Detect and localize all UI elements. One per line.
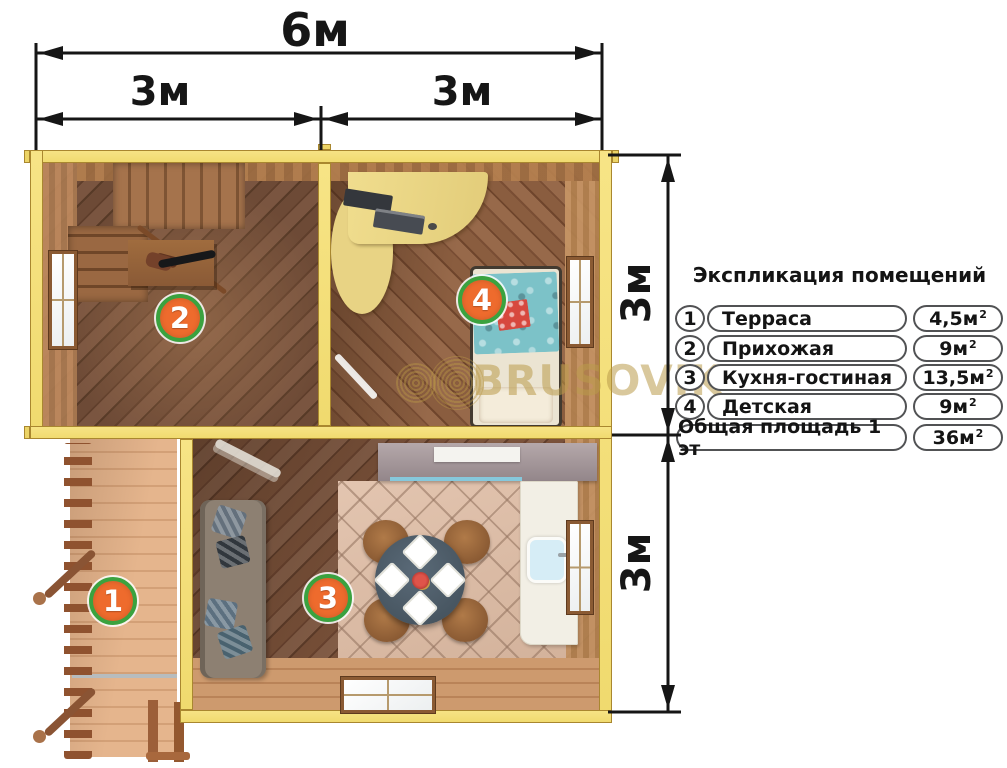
legend-row-area: 9м2 (913, 335, 1003, 362)
sofa-pillow (204, 598, 238, 631)
legend-total-area: 36м2 (913, 424, 1003, 451)
wall-middle-horizontal (30, 426, 612, 439)
log-end-cap (24, 426, 30, 439)
arrowhead (661, 438, 675, 462)
living-bottom-window (340, 676, 436, 714)
arrowhead (661, 685, 675, 709)
area-value: 4,5м (929, 308, 978, 330)
kitchen-appliance (434, 447, 520, 462)
legend-total-name: Общая площадь 1 эт (676, 424, 907, 451)
arrowhead (39, 46, 63, 60)
area-sup: 2 (976, 427, 984, 440)
dim-label-top-height: 3м (614, 263, 660, 324)
window-panes (344, 680, 432, 710)
table-centerpiece (412, 572, 429, 589)
dim-label-left-width: 3м (130, 69, 191, 115)
legend-row-number: 1 (675, 305, 705, 332)
kitchen-sink (527, 537, 567, 583)
arrowhead (324, 112, 348, 126)
arrowhead (661, 158, 675, 182)
kids-room-window (566, 256, 594, 348)
arrowhead (661, 408, 675, 432)
legend-row-number: 2 (675, 335, 705, 362)
hallway-window (48, 250, 78, 350)
legend-row-area: 13,5м2 (913, 364, 1003, 391)
legend-row-area: 4,5м2 (913, 305, 1003, 332)
area-sup: 2 (969, 338, 977, 351)
legend-row-area: 9м2 (913, 393, 1003, 420)
area-value: 9м (939, 338, 968, 360)
wall-partition-vertical (318, 163, 331, 426)
dim-label-bottom-height: 3м (614, 533, 660, 594)
arrowhead (575, 112, 599, 126)
log-end-cap (612, 150, 619, 163)
legend-row-name: Кухня-гостиная (707, 364, 907, 391)
legend-row-number: 3 (675, 364, 705, 391)
handrail-knob (33, 730, 46, 743)
area-value: 13,5м (922, 367, 984, 389)
window-panes (570, 260, 590, 344)
window-panes (570, 524, 590, 611)
wall-left (30, 150, 43, 439)
room-marker-hallway: 2 (156, 294, 204, 342)
area-sup: 2 (969, 396, 977, 409)
handrail-knob (33, 592, 46, 605)
room-marker-terrace: 1 (89, 577, 137, 625)
dim-label-total-width: 6м (280, 3, 350, 57)
log-end-cap (318, 144, 331, 150)
arrowhead (575, 46, 599, 60)
counter-blue-edge (390, 477, 522, 481)
legend-row-name: Прихожая (707, 335, 907, 362)
room-marker-kitchen-living: 3 (304, 574, 352, 622)
entry-step (146, 752, 190, 760)
arrowhead (294, 112, 318, 126)
arrowhead (39, 112, 63, 126)
legend-title: Экспликация помещений (672, 263, 1007, 287)
wall-top (30, 150, 612, 163)
staircase-upper-flight (113, 163, 245, 229)
area-value: 36м (933, 427, 975, 449)
mouse (428, 223, 437, 230)
area-value: 9м (939, 396, 968, 418)
living-right-window (566, 520, 594, 615)
dim-label-right-width: 3м (432, 69, 493, 115)
window-panes (52, 254, 74, 346)
wall-terrace-divider (180, 439, 193, 710)
log-end-cap (24, 150, 30, 163)
room-marker-kids-room: 4 (458, 276, 506, 324)
floor-plan-canvas: BRUSOVIK 1 2 3 4 Экспликация помещений 1… (0, 0, 1007, 768)
legend-row-name: Терраса (707, 305, 907, 332)
area-sup: 2 (979, 308, 987, 321)
area-sup: 2 (986, 367, 994, 380)
